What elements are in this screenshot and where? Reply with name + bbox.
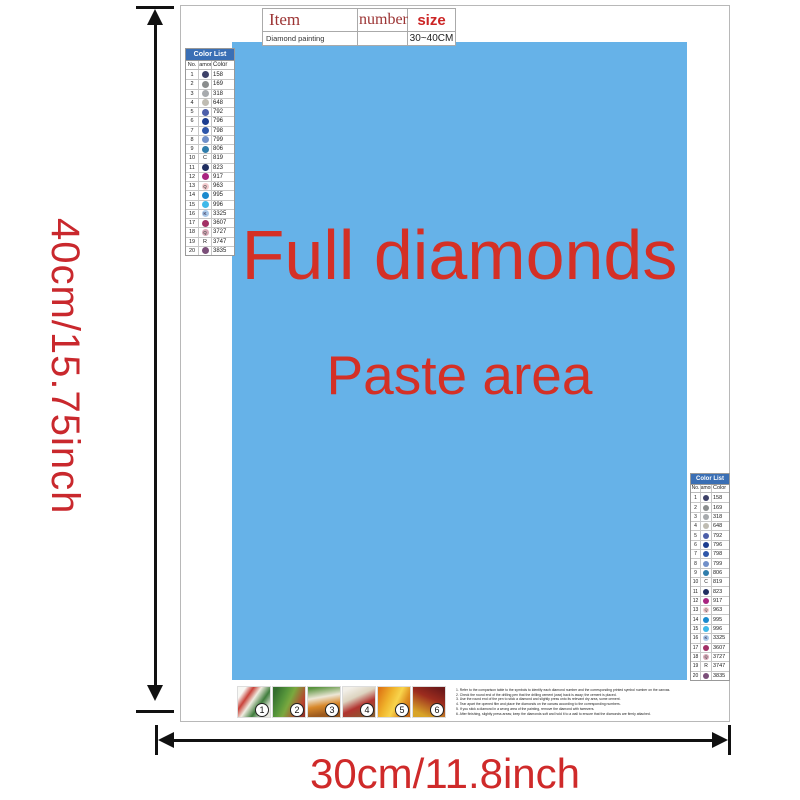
diamond-color-swatch-icon: [703, 673, 709, 679]
color-row-number: 18: [691, 653, 701, 661]
color-list-row: 3318: [186, 89, 234, 98]
color-row-number: 16: [691, 634, 701, 642]
color-row-code: 3325: [712, 635, 729, 641]
color-list-row: 8799: [186, 135, 234, 144]
diamond-color-swatch-icon: [202, 192, 209, 199]
step-image-3: 3: [307, 686, 341, 718]
color-row-symbol: R: [701, 662, 712, 670]
color-list-row: 10C819: [186, 153, 234, 162]
size-header-label: size: [408, 9, 456, 32]
color-row-code: 3607: [212, 220, 234, 226]
item-table-header-row: Item number size: [263, 9, 456, 32]
step-number-badge: 3: [325, 703, 339, 717]
color-row-code: 798: [712, 551, 729, 557]
color-list-row: 18Q3727: [186, 227, 234, 236]
color-row-number: 12: [691, 597, 701, 605]
color-list-row: 9806: [186, 144, 234, 153]
color-row-symbol: [199, 173, 212, 181]
color-row-number: 14: [186, 191, 199, 199]
color-list-row: 173607: [691, 643, 729, 652]
diamond-color-swatch-icon: [703, 505, 709, 511]
color-row-code: 3835: [212, 248, 234, 254]
color-row-code: 823: [212, 165, 234, 171]
step-number-badge: 5: [395, 703, 409, 717]
diamond-color-swatch-icon: [202, 136, 209, 143]
diamond-color-swatch-icon: K: [703, 635, 709, 641]
diamond-color-swatch-icon: [202, 118, 209, 125]
instruction-step-images: 123456: [237, 686, 446, 718]
color-row-code: 3727: [212, 229, 234, 235]
item-name-value: Diamond painting: [263, 32, 358, 46]
item-size-value: 30~40CM: [408, 32, 456, 46]
col-header-color: Color: [712, 485, 729, 492]
color-list-row: 11823: [691, 586, 729, 595]
color-row-number: 17: [186, 219, 199, 227]
color-row-code: 798: [212, 128, 234, 134]
color-row-code: 169: [212, 81, 234, 87]
color-row-number: 7: [186, 127, 199, 135]
paste-area-title-line2: Paste area: [326, 348, 592, 403]
color-row-number: 19: [691, 662, 701, 670]
color-row-symbol: [199, 219, 212, 227]
color-row-code: 799: [212, 137, 234, 143]
color-list-rows: 11582169331846485792679677988799980610C8…: [691, 493, 729, 680]
color-row-code: 158: [712, 495, 729, 501]
diamond-color-swatch-icon: [202, 81, 209, 88]
color-row-symbol: [199, 145, 212, 153]
color-row-code: 648: [212, 100, 234, 106]
color-row-number: 1: [691, 493, 701, 502]
color-list-title: Color List: [691, 474, 729, 485]
color-row-code: 318: [212, 91, 234, 97]
color-row-code: 796: [712, 542, 729, 548]
color-row-symbol: [701, 531, 712, 539]
step-image-4: 4: [342, 686, 376, 718]
color-list-row: 8799: [691, 558, 729, 567]
color-row-symbol: R: [199, 238, 212, 246]
color-list-row: 4648: [186, 98, 234, 107]
color-row-code: 792: [712, 533, 729, 539]
color-row-code: 995: [712, 617, 729, 623]
color-row-symbol: K: [701, 634, 712, 642]
color-row-code: 158: [212, 72, 234, 78]
step-image-2: 2: [272, 686, 306, 718]
color-row-symbol: [701, 615, 712, 623]
color-list-row: 6796: [691, 540, 729, 549]
color-row-code: 796: [212, 118, 234, 124]
color-list-row: 15996: [691, 624, 729, 633]
color-list-row: 19R3747: [691, 661, 729, 670]
color-row-code: 3607: [712, 645, 729, 651]
color-row-code: 823: [712, 589, 729, 595]
color-row-symbol: [199, 70, 212, 79]
color-row-code: 996: [712, 626, 729, 632]
diamond-color-swatch-icon: [703, 533, 709, 539]
color-row-code: 3325: [212, 211, 234, 217]
diamond-color-swatch-icon: [202, 220, 209, 227]
color-row-symbol: [199, 108, 212, 116]
color-row-number: 9: [691, 569, 701, 577]
color-row-symbol: [199, 136, 212, 144]
color-row-number: 3: [186, 90, 199, 98]
color-row-symbol: [701, 550, 712, 558]
height-arrow-line: [154, 20, 157, 696]
color-list-table-right: Color List No. Diamond Color 11582169331…: [690, 473, 730, 681]
color-row-code: 318: [712, 514, 729, 520]
diamond-color-swatch-icon: [703, 514, 709, 520]
color-row-number: 14: [691, 615, 701, 623]
color-row-symbol: Q: [701, 653, 712, 661]
width-dimension-label: 30cm/11.8inch: [160, 750, 730, 798]
paste-area: Full diamonds Paste area: [232, 42, 687, 680]
color-list-row: 15996: [186, 200, 234, 209]
color-row-code: 917: [212, 174, 234, 180]
color-list-row: 173607: [186, 218, 234, 227]
diamond-color-swatch-icon: Q: [202, 229, 209, 236]
item-info-table: Item number size Diamond painting 30~40C…: [262, 8, 456, 46]
color-row-code: 3747: [212, 239, 234, 245]
color-row-code: 169: [712, 505, 729, 511]
color-row-code: 3747: [712, 663, 729, 669]
color-row-symbol: K: [199, 210, 212, 218]
diamond-color-swatch-icon: Q: [202, 183, 209, 190]
step-number-badge: 6: [430, 703, 444, 717]
color-row-number: 6: [691, 541, 701, 549]
diamond-color-swatch-icon: [202, 164, 209, 171]
color-row-number: 9: [186, 145, 199, 153]
color-row-symbol: [701, 503, 712, 511]
color-row-symbol: [701, 587, 712, 595]
diamond-color-swatch-icon: Q: [703, 607, 709, 613]
color-row-symbol: [701, 644, 712, 652]
color-row-symbol: [199, 99, 212, 107]
color-row-number: 20: [186, 247, 199, 255]
color-list-row: 16K3325: [186, 209, 234, 218]
color-row-symbol: [199, 201, 212, 209]
color-list-row: 1158: [186, 70, 234, 79]
diamond-color-swatch-icon: [703, 626, 709, 632]
diamond-color-swatch-icon: [202, 71, 209, 78]
color-row-symbol: [701, 672, 712, 680]
color-list-row: 11823: [186, 163, 234, 172]
color-list-row: 2169: [691, 502, 729, 511]
color-row-number: 6: [186, 117, 199, 125]
color-list-row: 4648: [691, 521, 729, 530]
diamond-color-swatch-icon: [202, 146, 209, 153]
color-row-symbol: [199, 117, 212, 125]
diamond-color-swatch-icon: [703, 589, 709, 595]
color-row-number: 1: [186, 70, 199, 79]
color-row-code: 806: [212, 146, 234, 152]
color-row-code: 648: [712, 523, 729, 529]
color-row-symbol: [199, 127, 212, 135]
color-row-number: 7: [691, 550, 701, 558]
color-row-symbol: [199, 80, 212, 88]
diamond-color-swatch-icon: [703, 495, 709, 501]
step-number-badge: 2: [290, 703, 304, 717]
color-list-row: 5792: [691, 530, 729, 539]
color-row-code: 996: [212, 202, 234, 208]
color-row-code: 995: [212, 192, 234, 198]
color-row-symbol: [701, 513, 712, 521]
color-row-number: 11: [186, 164, 199, 172]
color-list-column-headers: No. Diamond Color: [691, 485, 729, 493]
height-arrow-cap-bottom: [136, 710, 174, 713]
color-row-number: 8: [691, 559, 701, 567]
color-row-symbol: Q: [199, 228, 212, 236]
color-row-number: 11: [691, 587, 701, 595]
step-number-badge: 1: [255, 703, 269, 717]
diamond-color-swatch-icon: [202, 247, 209, 254]
color-row-number: 13: [691, 606, 701, 614]
step-number-badge: 4: [360, 703, 374, 717]
col-header-no: No.: [691, 485, 701, 492]
color-row-number: 4: [691, 522, 701, 530]
color-row-symbol: [199, 164, 212, 172]
color-row-number: 10: [691, 578, 701, 586]
diamond-color-swatch-icon: [202, 109, 209, 116]
color-list-row: 203835: [691, 671, 729, 680]
color-row-code: 806: [712, 570, 729, 576]
diamond-color-swatch-icon: [703, 645, 709, 651]
color-list-row: 18Q3727: [691, 652, 729, 661]
step-image-1: 1: [237, 686, 271, 718]
col-header-no: No.: [186, 61, 199, 69]
color-row-code: 819: [712, 579, 729, 585]
instruction-line: 6. After finishing, slightly press areas…: [456, 712, 690, 717]
diamond-color-swatch-icon: [703, 570, 709, 576]
color-row-number: 5: [186, 108, 199, 116]
color-row-symbol: Q: [701, 606, 712, 614]
paste-area-title-line1: Full diamonds: [242, 220, 678, 290]
color-row-symbol: [701, 493, 712, 502]
color-row-number: 2: [691, 503, 701, 511]
color-row-number: 2: [186, 80, 199, 88]
color-row-code: 917: [712, 598, 729, 604]
number-header-label: number: [358, 9, 408, 32]
color-row-code: 819: [212, 155, 234, 161]
color-row-symbol: [199, 90, 212, 98]
color-list-row: 13Q963: [186, 181, 234, 190]
color-list-row: 16K3325: [691, 633, 729, 642]
diamond-color-swatch-icon: [202, 90, 209, 97]
color-list-row: 6796: [186, 116, 234, 125]
diamond-color-swatch-icon: [703, 617, 709, 623]
color-row-number: 8: [186, 136, 199, 144]
height-dimension-label: 40cm/15.75inch: [42, 218, 87, 514]
color-row-number: 5: [691, 531, 701, 539]
step-image-6: 6: [412, 686, 446, 718]
color-list-row: 203835: [186, 246, 234, 255]
diamond-color-swatch-icon: [202, 99, 209, 106]
color-row-symbol: [701, 559, 712, 567]
color-row-number: 10: [186, 154, 199, 162]
diamond-color-swatch-icon: K: [202, 210, 209, 217]
item-number-value: [358, 32, 408, 46]
color-row-symbol: [701, 597, 712, 605]
color-row-symbol: Q: [199, 182, 212, 190]
color-row-symbol: [701, 541, 712, 549]
color-list-row: 13Q963: [691, 605, 729, 614]
color-list-row: 7798: [691, 549, 729, 558]
instruction-line: 1. Refer to the comparison table to the …: [456, 688, 690, 693]
width-arrowhead-left-icon: [158, 732, 174, 748]
color-list-row: 1158: [691, 493, 729, 502]
diamond-color-swatch-icon: Q: [703, 654, 709, 660]
color-row-symbol: [701, 522, 712, 530]
diamond-color-swatch-icon: [703, 542, 709, 548]
color-row-number: 20: [691, 672, 701, 680]
color-list-row: 9806: [691, 568, 729, 577]
color-list-table-left: Color List No. Diamond Color 11582169331…: [185, 48, 235, 256]
diamond-color-swatch-icon: [703, 561, 709, 567]
color-list-row: 14995: [186, 190, 234, 199]
color-list-row: 2169: [186, 79, 234, 88]
color-row-symbol: [701, 625, 712, 633]
height-arrowhead-down-icon: [147, 685, 163, 701]
color-list-column-headers: No. Diamond Color: [186, 61, 234, 70]
color-row-symbol: [199, 247, 212, 255]
color-list-rows: 11582169331846485792679677988799980610C8…: [186, 70, 234, 255]
color-row-number: 12: [186, 173, 199, 181]
diamond-color-swatch-icon: [703, 551, 709, 557]
color-list-title: Color List: [186, 49, 234, 61]
color-list-row: 5792: [186, 107, 234, 116]
color-list-row: 12917: [186, 172, 234, 181]
color-list-row: 19R3747: [186, 237, 234, 246]
color-row-number: 15: [691, 625, 701, 633]
width-arrowhead-right-icon: [712, 732, 728, 748]
color-list-row: 14995: [691, 614, 729, 623]
diamond-color-swatch-icon: [703, 598, 709, 604]
color-list-row: 10C819: [691, 577, 729, 586]
color-row-number: 18: [186, 228, 199, 236]
height-arrowhead-up-icon: [147, 9, 163, 25]
color-list-row: 12917: [691, 596, 729, 605]
color-row-symbol: [701, 569, 712, 577]
width-arrow-line: [168, 739, 718, 742]
instruction-text-block: 1. Refer to the comparison table to the …: [456, 688, 690, 716]
color-row-number: 4: [186, 99, 199, 107]
color-row-code: 3835: [712, 673, 729, 679]
step-image-5: 5: [377, 686, 411, 718]
item-table-data-row: Diamond painting 30~40CM: [263, 32, 456, 46]
color-row-number: 15: [186, 201, 199, 209]
color-row-code: 963: [712, 607, 729, 613]
color-row-symbol: C: [199, 154, 212, 162]
col-header-color: Color: [212, 61, 234, 69]
col-header-diamond: Diamond: [199, 61, 212, 69]
diamond-color-swatch-icon: [703, 523, 709, 529]
color-row-number: 17: [691, 644, 701, 652]
color-row-number: 13: [186, 182, 199, 190]
color-row-number: 19: [186, 238, 199, 246]
color-row-number: 16: [186, 210, 199, 218]
col-header-diamond: Diamond: [701, 485, 712, 492]
color-row-number: 3: [691, 513, 701, 521]
color-list-row: 7798: [186, 126, 234, 135]
color-row-code: 963: [212, 183, 234, 189]
color-row-code: 792: [212, 109, 234, 115]
color-row-symbol: [199, 191, 212, 199]
diamond-color-swatch-icon: [202, 201, 209, 208]
item-header-label: Item: [263, 9, 358, 32]
color-row-symbol: C: [701, 578, 712, 586]
diamond-color-swatch-icon: [202, 127, 209, 134]
diamond-color-swatch-icon: [202, 173, 209, 180]
product-dimension-diagram: Item number size Diamond painting 30~40C…: [0, 0, 800, 800]
color-row-code: 3727: [712, 654, 729, 660]
color-row-code: 799: [712, 561, 729, 567]
color-list-row: 3318: [691, 512, 729, 521]
